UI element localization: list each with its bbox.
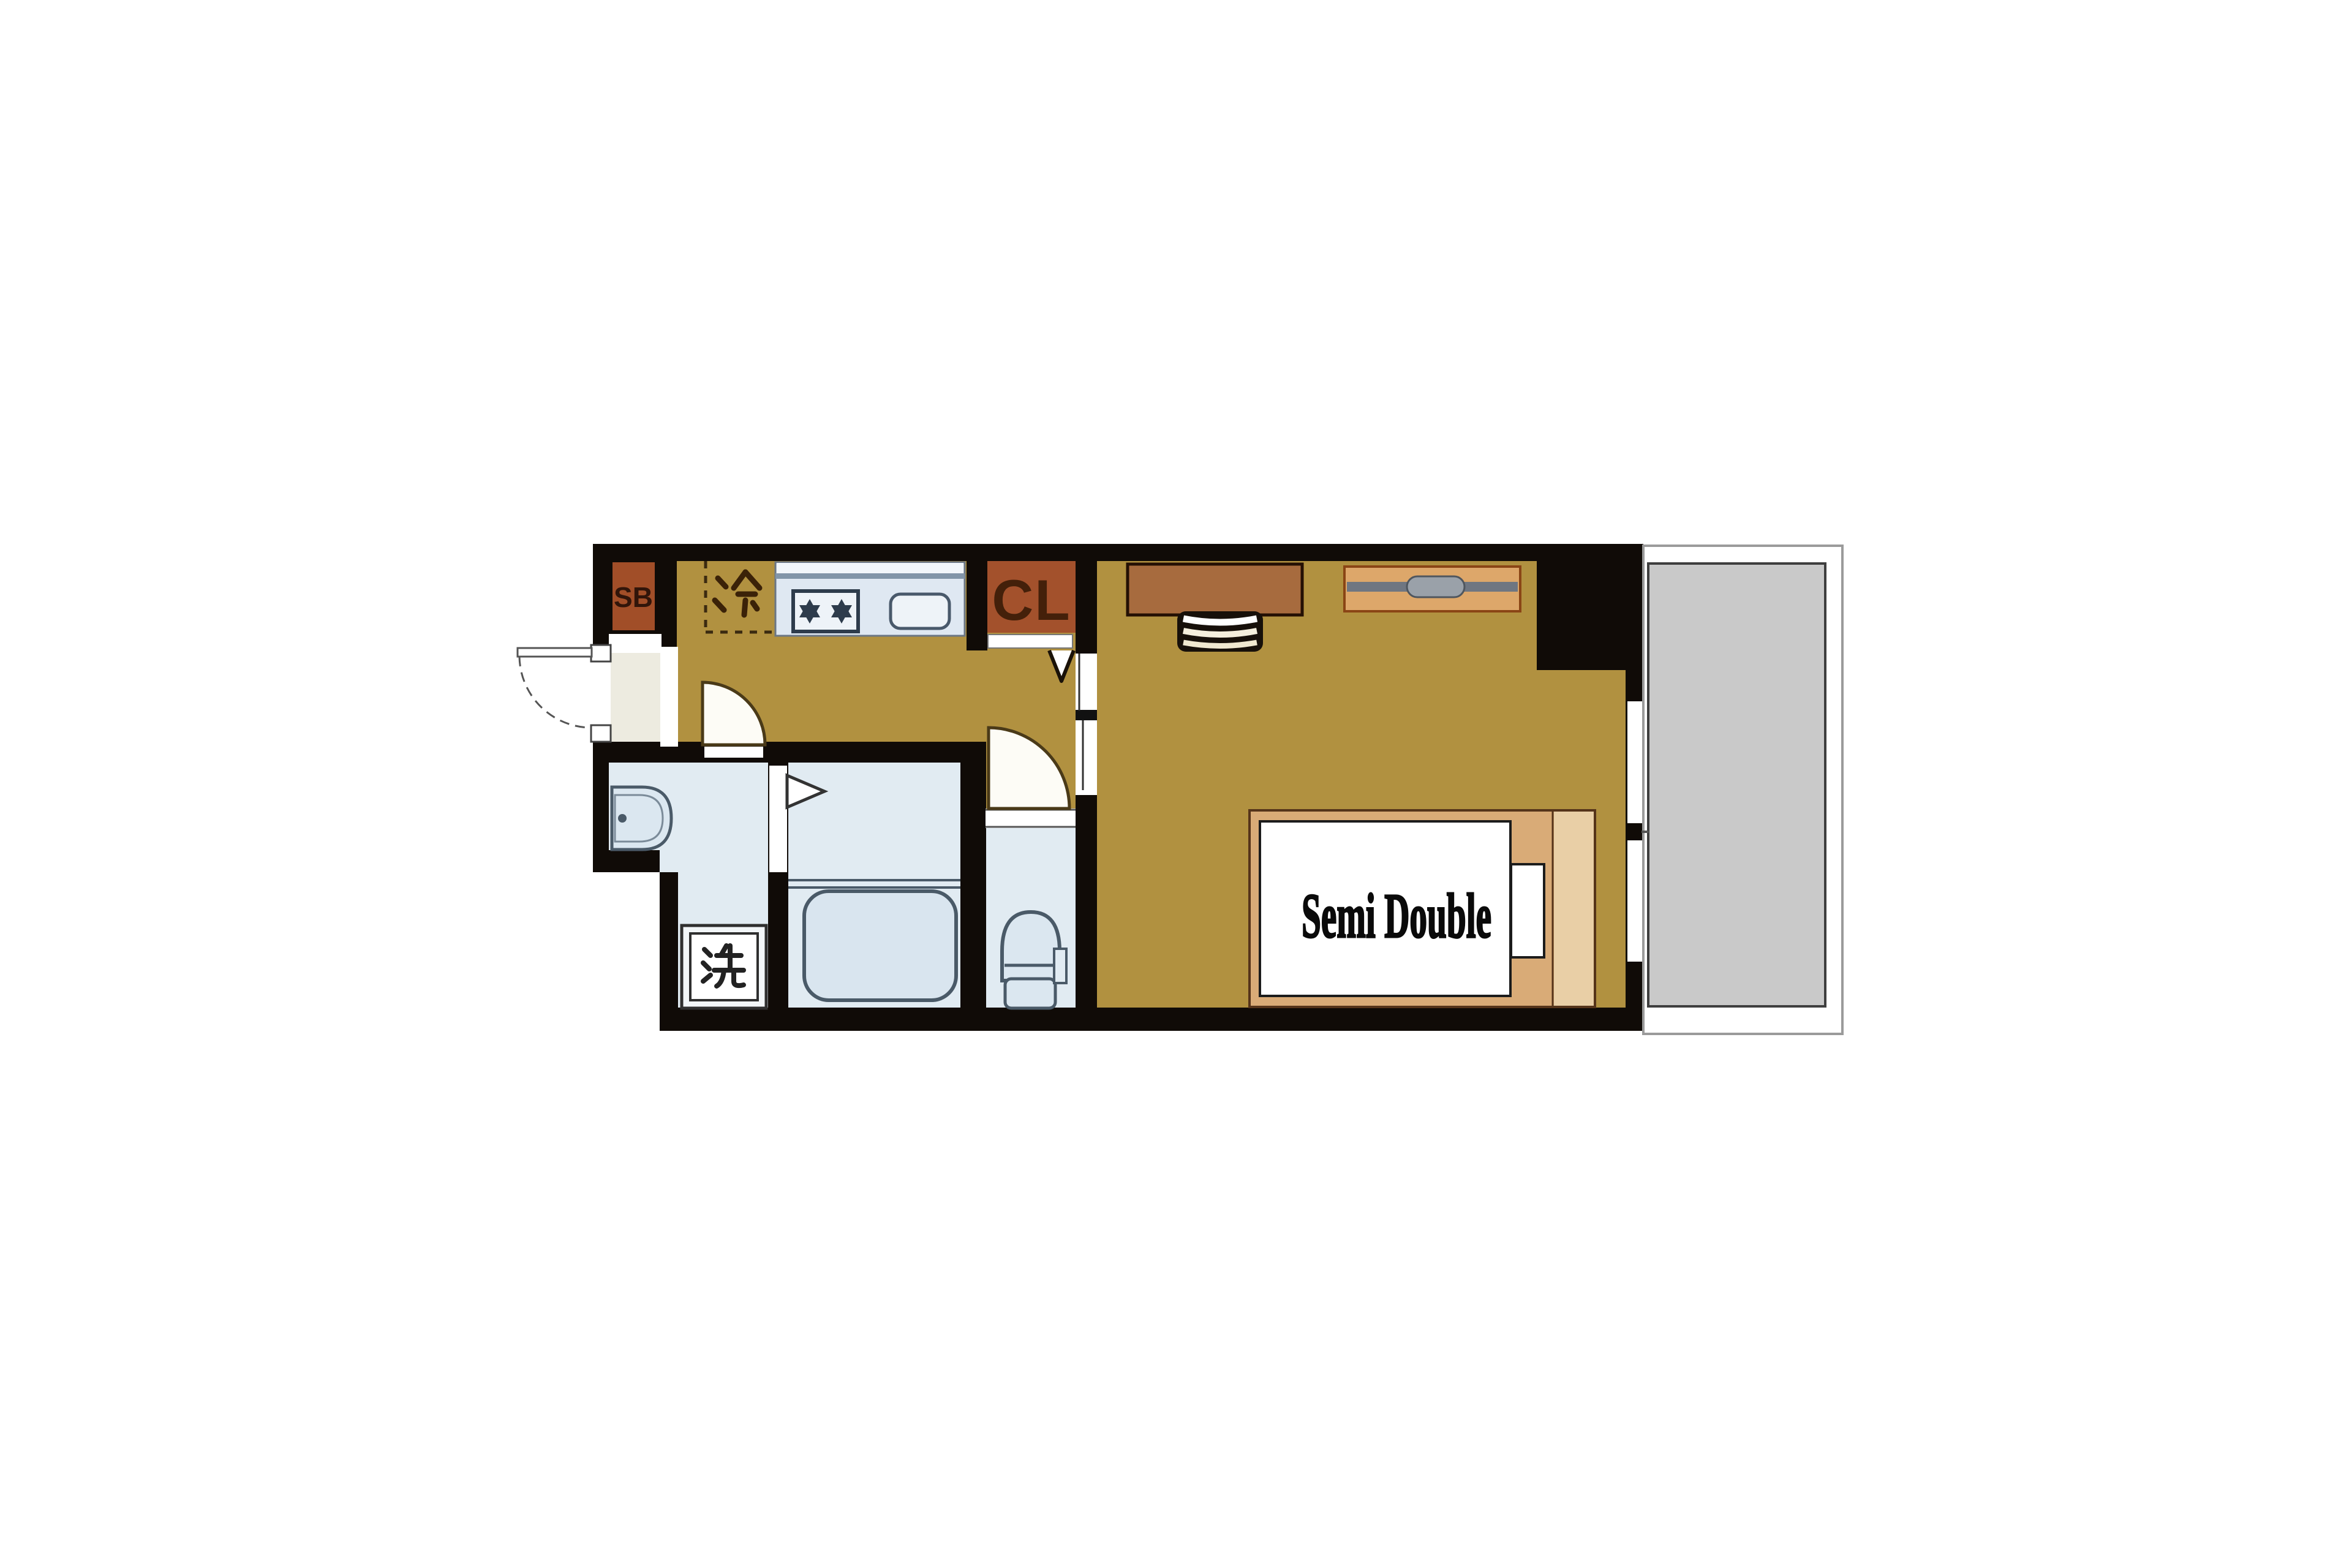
svg-text:CL: CL bbox=[992, 568, 1071, 632]
svg-text:SB: SB bbox=[614, 581, 653, 613]
svg-text:Semi Double: Semi Double bbox=[1302, 881, 1491, 951]
